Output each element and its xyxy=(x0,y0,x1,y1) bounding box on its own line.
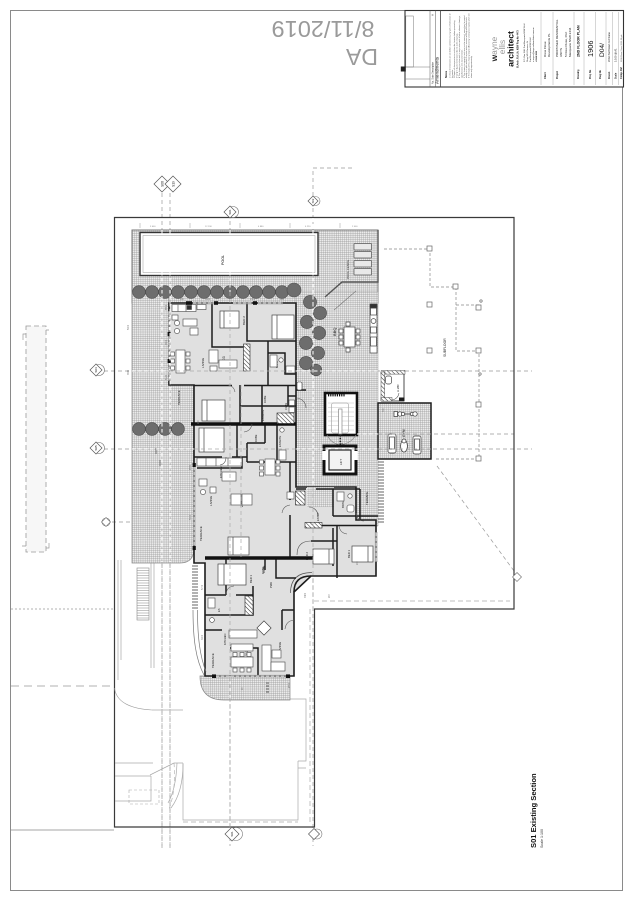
svg-text:5550: 5550 xyxy=(166,304,168,310)
svg-text:#CAD Technician Full Name: #CAD Technician Full Name xyxy=(608,31,611,62)
svg-text:S02: S02 xyxy=(311,198,315,203)
svg-text:LIFT: LIFT xyxy=(339,459,343,465)
svg-text:Proj. No: Proj. No xyxy=(589,69,592,79)
svg-text:S05: S05 xyxy=(94,445,98,451)
svg-text:S01: S01 xyxy=(230,831,234,837)
svg-text:BBQ: BBQ xyxy=(332,328,337,336)
svg-text:ENSUITE: ENSUITE xyxy=(278,435,282,447)
svg-text:Dwg No: Dwg No xyxy=(599,70,602,79)
svg-text:Shop 3/10 Clarence St: Shop 3/10 Clarence St xyxy=(526,41,529,62)
svg-text:S08: S08 xyxy=(161,181,165,187)
svg-text:Scale: Scale xyxy=(615,72,618,79)
svg-text:ENTRY: ENTRY xyxy=(316,512,320,521)
svg-text:2ND FLOOR PLAN: 2ND FLOOR PLAN xyxy=(577,25,581,57)
svg-text:5090: 5090 xyxy=(190,514,192,520)
svg-text:Comp. Ref: Comp. Ref xyxy=(620,67,623,79)
svg-text:S19: S19 xyxy=(172,181,176,187)
svg-text:5900: 5900 xyxy=(128,324,130,330)
svg-text:3600: 3600 xyxy=(205,299,211,301)
svg-text:PWD: PWD xyxy=(269,582,273,588)
svg-text:BED 1: BED 1 xyxy=(347,549,351,558)
svg-text:BATH: BATH xyxy=(341,501,345,508)
svg-text:UNITS: UNITS xyxy=(559,48,563,57)
svg-text:ES: ES xyxy=(217,608,221,612)
svg-text:1906: 1906 xyxy=(586,41,595,57)
svg-text:TERRACE: TERRACE xyxy=(211,653,215,668)
svg-text:6 220: 6 220 xyxy=(305,226,311,228)
svg-text:4550: 4550 xyxy=(289,682,291,688)
svg-text:Client: Client xyxy=(544,72,547,79)
svg-text:ENSUITE: ENSUITE xyxy=(261,409,265,421)
svg-text:Developments PL: Developments PL xyxy=(547,33,551,57)
svg-text:S04: S04 xyxy=(94,367,98,373)
svg-text:3600: 3600 xyxy=(166,339,168,345)
svg-text:ROBE: ROBE xyxy=(254,434,258,442)
svg-text:POOL FENCE: POOL FENCE xyxy=(346,260,350,279)
svg-text:BED 2: BED 2 xyxy=(305,551,309,560)
svg-text:TERRACE: TERRACE xyxy=(365,492,369,505)
svg-text:3460: 3460 xyxy=(305,592,307,598)
svg-text:TERRACE: TERRACE xyxy=(199,526,203,541)
svg-text:GYM: GYM xyxy=(402,429,406,437)
svg-text:KITCHEN: KITCHEN xyxy=(223,633,227,645)
svg-text:A.WC: A.WC xyxy=(396,383,400,392)
svg-text:BED 2: BED 2 xyxy=(242,316,246,325)
svg-text:BED 1: BED 1 xyxy=(249,574,253,583)
svg-text:SUBFLOOR: SUBFLOOR xyxy=(443,338,447,357)
svg-text:D04/: D04/ xyxy=(599,43,606,57)
svg-text:3900: 3900 xyxy=(202,634,204,640)
svg-text:3640: 3640 xyxy=(128,369,130,375)
svg-text:5770: 5770 xyxy=(202,584,204,590)
svg-text:1 Check all dimensions on si: 1 Check all dimensions on site before co… xyxy=(448,13,451,78)
svg-text:POOL: POOL xyxy=(221,255,225,265)
svg-text:shown only approximately.: shown only approximately. xyxy=(470,55,473,78)
svg-text:TERRACE: TERRACE xyxy=(177,390,181,405)
svg-text:LIVING: LIVING xyxy=(209,495,213,506)
svg-text:e wayne@wayneellisarchitect.c: e wayne@wayneellisarchitect.com.au xyxy=(532,26,535,62)
svg-text:8/11/2019: 8/11/2019 xyxy=(272,16,375,42)
svg-text:DA: DA xyxy=(345,44,378,70)
svg-text:Macquarie NSW 2444: Macquarie NSW 2444 xyxy=(568,27,572,57)
svg-text:Drawn: Drawn xyxy=(608,71,611,79)
svg-text:4 880: 4 880 xyxy=(258,226,264,228)
svg-text:Amendments: Amendments xyxy=(435,56,440,84)
svg-text:P.O. Box 1962 Port Macquarie N: P.O. Box 1962 Port Macquarie NSW 2444 xyxy=(523,23,526,62)
svg-text:5120: 5120 xyxy=(166,374,168,380)
svg-text:ROBE: ROBE xyxy=(263,395,267,403)
svg-text:2 400: 2 400 xyxy=(352,226,358,228)
svg-text:Notes: Notes xyxy=(444,70,448,78)
svg-text:LIVING: LIVING xyxy=(201,357,205,368)
svg-text:architect: architect xyxy=(506,31,516,67)
svg-text:3 600: 3 600 xyxy=(150,226,156,228)
svg-text:No. Date Description: No. Date Description xyxy=(432,61,435,84)
svg-text:1:100 @ A1: 1:100 @ A1 xyxy=(614,48,618,62)
svg-text:S01: S01 xyxy=(228,209,232,215)
svg-text:Project: Project xyxy=(556,71,559,79)
svg-text:2400: 2400 xyxy=(250,299,256,301)
svg-text:Port Macquarie NSW 2444: Port Macquarie NSW 2444 xyxy=(529,36,532,62)
svg-text:4580: 4580 xyxy=(190,464,192,470)
svg-text:CABN: CABN xyxy=(284,403,288,410)
svg-text:Drawing: Drawing xyxy=(577,69,580,79)
svg-text:S01 Existing Section: S01 Existing Section xyxy=(529,773,538,848)
svg-text:A: A xyxy=(431,14,435,16)
svg-text:1906 Drew Close 2019-16.pln: 1906 Drew Close 2019-16.pln xyxy=(620,34,623,62)
svg-text:B.Arch. R.A.I.A. NSW Reg No 44: B.Arch. R.A.I.A. NSW Reg No 4473 xyxy=(517,30,520,68)
svg-text:12 190: 12 190 xyxy=(205,226,212,228)
svg-text:ROBE: ROBE xyxy=(262,565,266,573)
svg-text:Scale 1:100: Scale 1:100 xyxy=(540,829,544,848)
svg-text:t 6584 9899: t 6584 9899 xyxy=(535,50,538,62)
